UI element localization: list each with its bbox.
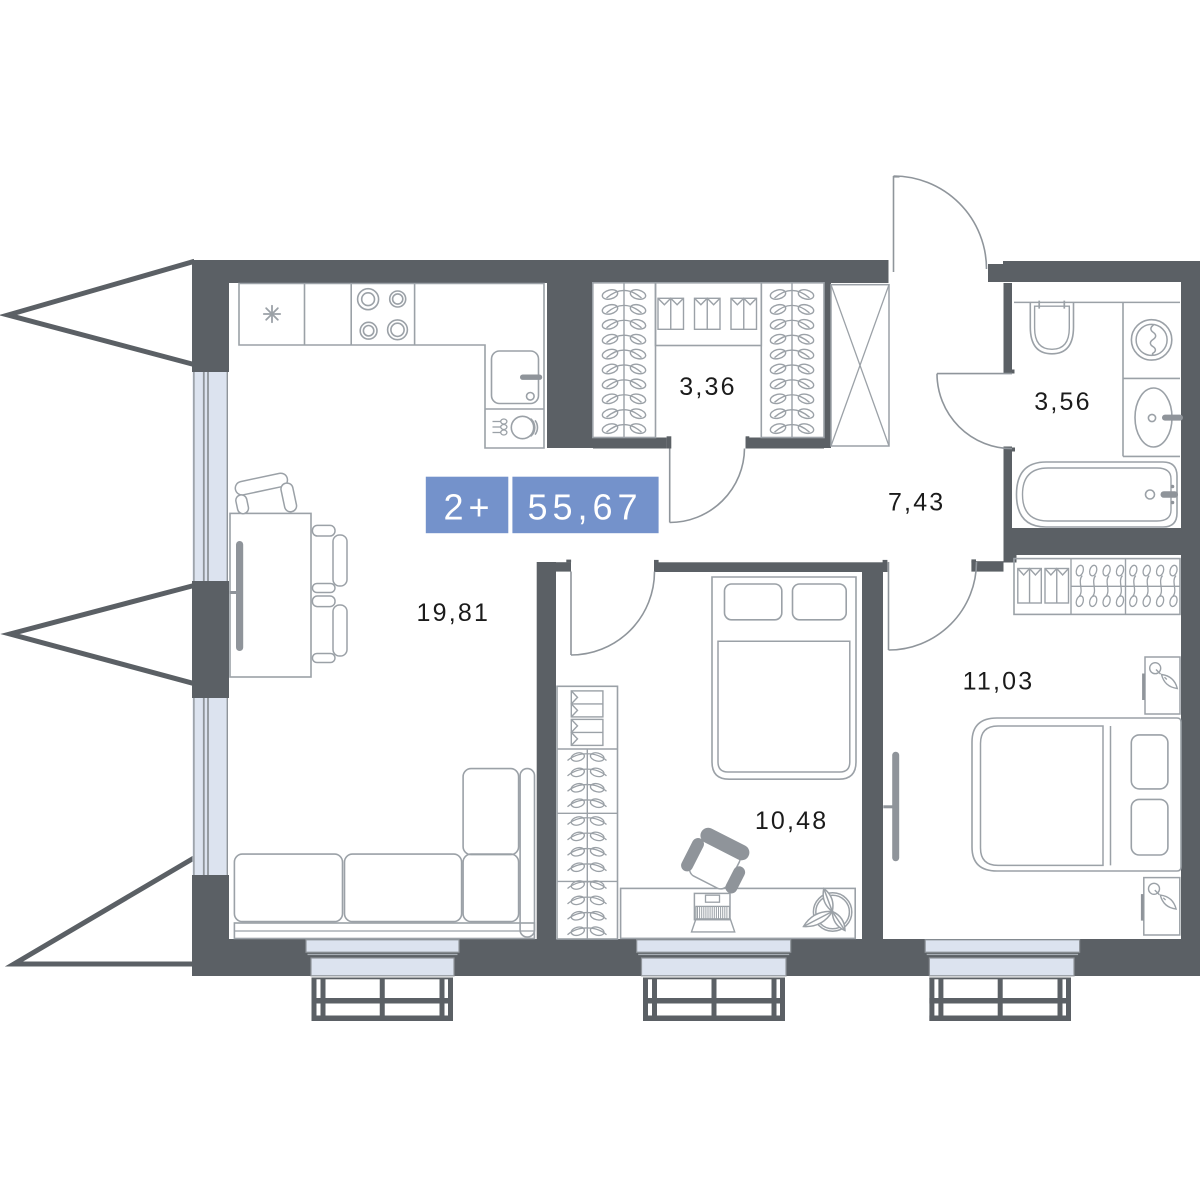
svg-text:55,67: 55,67: [527, 487, 642, 528]
svg-text:3,56: 3,56: [1034, 388, 1091, 416]
svg-text:10,48: 10,48: [755, 807, 829, 835]
svg-text:2+: 2+: [443, 487, 494, 528]
svg-text:19,81: 19,81: [417, 599, 491, 627]
svg-text:11,03: 11,03: [963, 668, 1035, 696]
svg-text:7,43: 7,43: [888, 489, 945, 517]
svg-text:3,36: 3,36: [679, 373, 736, 401]
